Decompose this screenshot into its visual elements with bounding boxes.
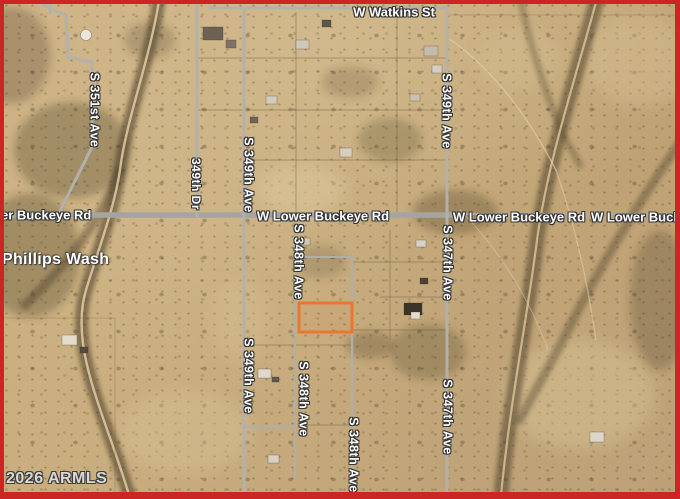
highlighted-parcel-outline (299, 303, 352, 332)
road-label-s-349th-ave-lower: S 349th Ave (242, 338, 255, 413)
road-label-lower-buckeye-left: er Buckeye Rd (1, 209, 91, 222)
attribution-watermark: 2026 ARMLS (6, 471, 107, 487)
red-border-bottom (0, 492, 680, 499)
road-label-lower-buckeye-mid: W Lower Buckeye Rd (257, 210, 389, 223)
road-label-s-349th-ave-east: S 349th Ave (440, 73, 453, 148)
road-label-s-349th-ave-upper: S 349th Ave (242, 137, 255, 212)
road-label-s-347th-ave-mid: S 347th Ave (441, 225, 454, 300)
red-border-top (0, 0, 680, 4)
red-border-left (0, 0, 4, 499)
water-label-phillips-wash: Phillips Wash (2, 252, 109, 268)
road-label-s-351st-ave: S 351st Ave (88, 73, 101, 148)
road-label-lower-buckeye-right: W Lower Buckeye Rd (453, 211, 585, 224)
road-label-lower-buckeye-edge: W Lower Bucke (591, 211, 680, 224)
road-label-s-348th-ave-mid: S 348th Ave (297, 361, 310, 436)
road-label-w-watkins-st: W Watkins St (353, 6, 435, 19)
satellite-map[interactable]: W Watkins St er Buckeye Rd W Lower Bucke… (0, 0, 680, 499)
road-label-s-348th-ave-lower: S 348th Ave (347, 417, 360, 492)
red-border-right (675, 0, 680, 499)
map-screenshot: W Watkins St er Buckeye Rd W Lower Bucke… (0, 0, 680, 499)
road-label-s-348th-ave-upper: S 348th Ave (292, 224, 305, 299)
road-label-s-347th-ave-lower: S 347th Ave (441, 379, 454, 454)
map-features-layer (0, 0, 680, 499)
road-label-349th-dr: 349th Dr (190, 158, 202, 210)
sand-patches (120, 15, 680, 474)
